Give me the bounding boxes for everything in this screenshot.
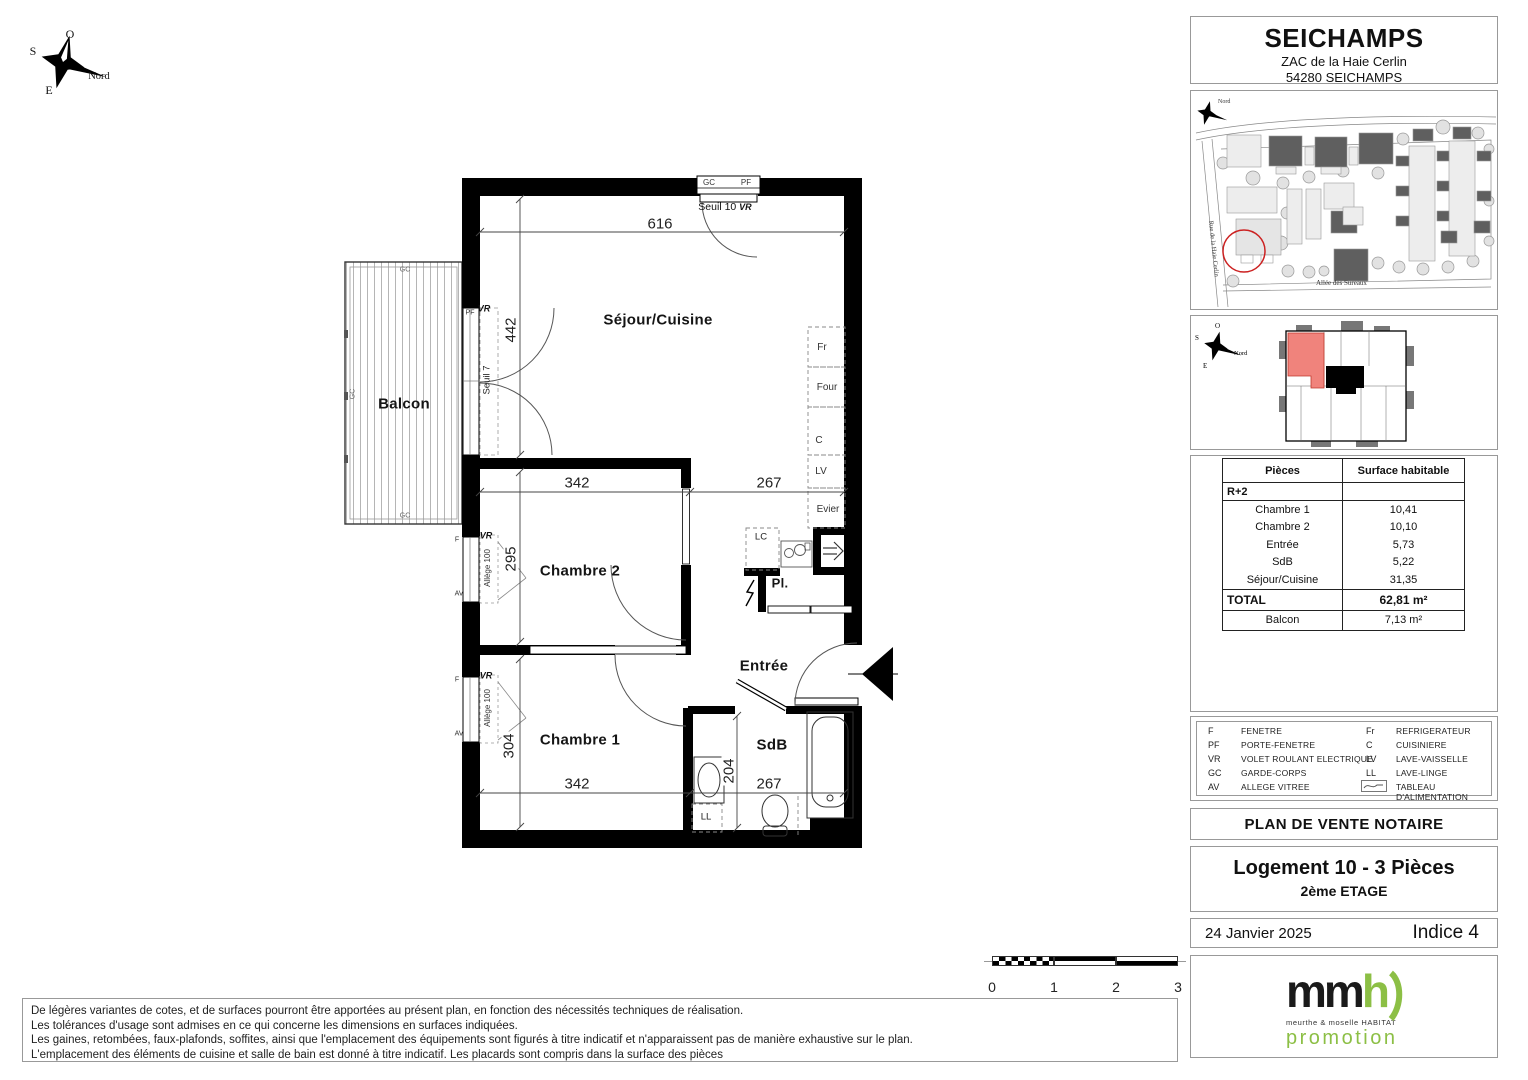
date-box: 24 Janvier 2025 Indice 4 (1190, 918, 1498, 948)
key-plan-box: O S E Nord (1190, 315, 1498, 450)
table-row: Chambre 1 10,41 (1223, 501, 1464, 519)
dim-442: 442 (504, 315, 519, 344)
tag-gc-balcony-top: GC (400, 267, 411, 274)
table-total-row: TOTAL 62,81 m² (1223, 590, 1464, 611)
street-left-label: Rue de la Haie Cerlin (1207, 220, 1220, 277)
legend-label: REFRIGERATEUR (1396, 726, 1471, 736)
room-label-sdb: SdB (757, 738, 788, 753)
legend-label: LAVE-VAISSELLE (1396, 754, 1468, 764)
key-plan-drawing: O S E Nord (1191, 316, 1497, 449)
plan-de-vente-page: O S E Nord Séjour/Cuisine Balcon Chambre… (0, 0, 1528, 1080)
doors (463, 176, 858, 726)
logo-swoosh-icon (1388, 970, 1404, 1022)
logo-mm-text: mm (1286, 964, 1362, 1018)
project-address2: 54280 SEICHAMPS (1191, 70, 1497, 86)
tag-av-window2: AV (455, 731, 464, 738)
exterior-walls (462, 178, 862, 848)
power-panel-icon (746, 580, 754, 606)
scale-bar-segment-3 (1116, 956, 1178, 966)
tag-f-window2: F (455, 677, 459, 684)
tag-gc-topdoor: GC (703, 179, 715, 187)
site-north-label: Nord (1218, 99, 1230, 105)
dim-342-ch2: 342 (562, 476, 591, 491)
tag-av-window1: AV (455, 591, 464, 598)
legend-label: CUISINIERE (1396, 740, 1447, 750)
room-label-entree: Entrée (740, 659, 789, 674)
dim-295: 295 (504, 544, 519, 573)
legend-abbr: LL (1366, 768, 1376, 778)
key-building (1279, 321, 1414, 447)
key-nord-label: Nord (1234, 350, 1248, 357)
dim-204: 204 (722, 756, 737, 785)
dim-267-sdb: 267 (754, 777, 783, 792)
key-s-label: S (1195, 334, 1199, 342)
tag-vr-balconydoor: VR (478, 305, 491, 314)
tag-gc-balcony-bottom: GC (400, 513, 411, 520)
table-floor-row: R+2 (1223, 483, 1343, 500)
plan-date: 24 Janvier 2025 (1205, 925, 1312, 942)
legend-label: GARDE-CORPS (1241, 768, 1307, 778)
scale-bar-segment-2 (1054, 956, 1116, 966)
unit-floor: 2ème ETAGE (1191, 883, 1497, 899)
legend-abbr: PF (1208, 740, 1220, 750)
tag-four: Four (817, 383, 838, 393)
tag-vr-window2: VR (480, 672, 493, 681)
direction-arrow-icon (823, 542, 843, 560)
legend-label: LAVE-LINGE (1396, 768, 1447, 778)
room-label-chambre2: Chambre 2 (540, 564, 620, 579)
surface-table: Pièces Surface habitable R+2 Chambre 1 1… (1222, 458, 1465, 631)
site-plan-box: Nord Rue de la Haie Cerlin Allée des Sur… (1190, 90, 1498, 310)
legend-label: ALLEGE VITREE (1241, 782, 1310, 792)
legend-label: TABLEAU D'ALIMENTATION (1396, 782, 1497, 802)
kitchen-appliances (692, 327, 845, 836)
tag-ll: LL (701, 812, 712, 822)
project-header: SEICHAMPS ZAC de la Haie Cerlin 54280 SE… (1190, 16, 1498, 84)
disclaimer-line: L'emplacement des éléments de cuisine et… (31, 1048, 1169, 1063)
compass-nord-label: Nord (88, 72, 110, 83)
logo-h-text: h (1362, 964, 1390, 1018)
site-plan-map: Nord Rue de la Haie Cerlin Allée des Sur… (1191, 91, 1497, 309)
unit-title: Logement 10 - 3 Pièces (1191, 857, 1497, 880)
table-row: SdB 5,22 (1223, 554, 1464, 572)
scale-label-3: 3 (1174, 979, 1182, 995)
key-e-label: E (1203, 362, 1207, 370)
tag-pf-topdoor: PF (741, 179, 751, 187)
bathroom-fixtures (694, 712, 853, 836)
project-title: SEICHAMPS (1191, 23, 1497, 54)
logo-promotion: promotion (1286, 1027, 1404, 1049)
dim-342-ch1: 342 (562, 777, 591, 792)
tag-allege-window1: Allège 100 (484, 549, 492, 587)
disclaimer-line: Les tolérances d'usage sont admises en c… (31, 1019, 1169, 1034)
tag-cuisiniere: C (815, 436, 822, 446)
room-label-placard: Pl. (772, 577, 789, 590)
entry-arrow-icon (848, 647, 898, 701)
tag-fr: Fr (817, 343, 826, 353)
disclaimer-line: Les gaines, retombées, faux-plafonds, so… (31, 1033, 1169, 1048)
doc-type-title: PLAN DE VENTE NOTAIRE (1245, 816, 1444, 833)
room-label-sejour: Séjour/Cuisine (603, 313, 712, 328)
unit-box: Logement 10 - 3 Pièces 2ème ETAGE (1190, 846, 1498, 912)
legend-label: PORTE-FENETRE (1241, 740, 1315, 750)
key-compass-icon (1201, 329, 1242, 364)
scale-label-1: 1 (1050, 979, 1058, 995)
tag-evier: Evier (817, 505, 840, 515)
dimension-lines (476, 195, 848, 832)
compass-o-label: O (66, 28, 75, 40)
disclaimer-line: De légères variantes de cotes, et de sur… (31, 1004, 1169, 1019)
logo-subtitle: meurthe & moselle HABITAT (1286, 1018, 1404, 1027)
table-row: Séjour/Cuisine 31,35 (1223, 571, 1464, 590)
tag-allege-window2: Allège 100 (484, 689, 492, 727)
plan-revision: Indice 4 (1412, 922, 1479, 944)
room-label-chambre1: Chambre 1 (540, 733, 620, 748)
room-label-balcon: Balcon (378, 397, 430, 412)
disclaimer-box: De légères variantes de cotes, et de sur… (22, 998, 1178, 1062)
table-col-surface: Surface habitable (1343, 465, 1464, 477)
tag-pf-balconydoor: PF (466, 310, 475, 317)
legend-abbr: AV (1208, 782, 1219, 792)
table-col-pieces: Pièces (1223, 459, 1343, 482)
site-buildings (1227, 127, 1491, 281)
balcony-deck (344, 262, 462, 524)
doc-type-box: PLAN DE VENTE NOTAIRE (1190, 808, 1498, 840)
scale-bar-segment-1 (992, 956, 1054, 966)
dim-304: 304 (502, 731, 517, 760)
toilet (762, 795, 788, 827)
legend-abbr: VR (1208, 754, 1221, 764)
legend-box: F FENETRE PF PORTE-FENETRE VR VOLET ROUL… (1190, 716, 1498, 801)
table-row: Chambre 2 10,10 (1223, 519, 1464, 537)
legend-abbr: GC (1208, 768, 1222, 778)
project-address1: ZAC de la Haie Cerlin (1191, 54, 1497, 70)
tag-seuil10: Seuil 10 VR (698, 202, 751, 213)
table-row: Entrée 5,73 (1223, 536, 1464, 554)
compass-e-label: E (45, 84, 52, 96)
scale-label-2: 2 (1112, 979, 1120, 995)
tag-lc: LC (755, 532, 767, 542)
dim-267-hall: 267 (754, 476, 783, 491)
legend-abbr: C (1366, 740, 1373, 750)
key-o-label: O (1215, 322, 1220, 330)
tag-vr-window1: VR (480, 532, 493, 541)
legend-label: VOLET ROULANT ELECTRIQUE (1241, 754, 1373, 764)
logo-box: mmh meurthe & moselle HABITAT promotion (1190, 955, 1498, 1058)
street-bottom-label: Allée des Sureaux (1316, 279, 1367, 287)
tag-seuil7: Seuil 7 (482, 365, 492, 394)
tag-f-window1: F (455, 537, 459, 544)
dim-616: 616 (645, 217, 674, 232)
scale-label-0: 0 (988, 979, 996, 995)
legend-abbr: Fr (1366, 726, 1375, 736)
legend-abbr: F (1208, 726, 1214, 736)
compass-s-label: S (30, 45, 37, 57)
mmh-logo: mmh meurthe & moselle HABITAT promotion (1286, 964, 1404, 1049)
tag-gc-balcony-left: GC (350, 389, 357, 400)
table-balcony-row: Balcon 7,13 m² (1223, 611, 1464, 630)
tableau-symbol-icon (1361, 780, 1387, 792)
tag-lv: LV (815, 467, 827, 477)
legend-abbr: LV (1366, 754, 1376, 764)
legend-label: FENETRE (1241, 726, 1282, 736)
